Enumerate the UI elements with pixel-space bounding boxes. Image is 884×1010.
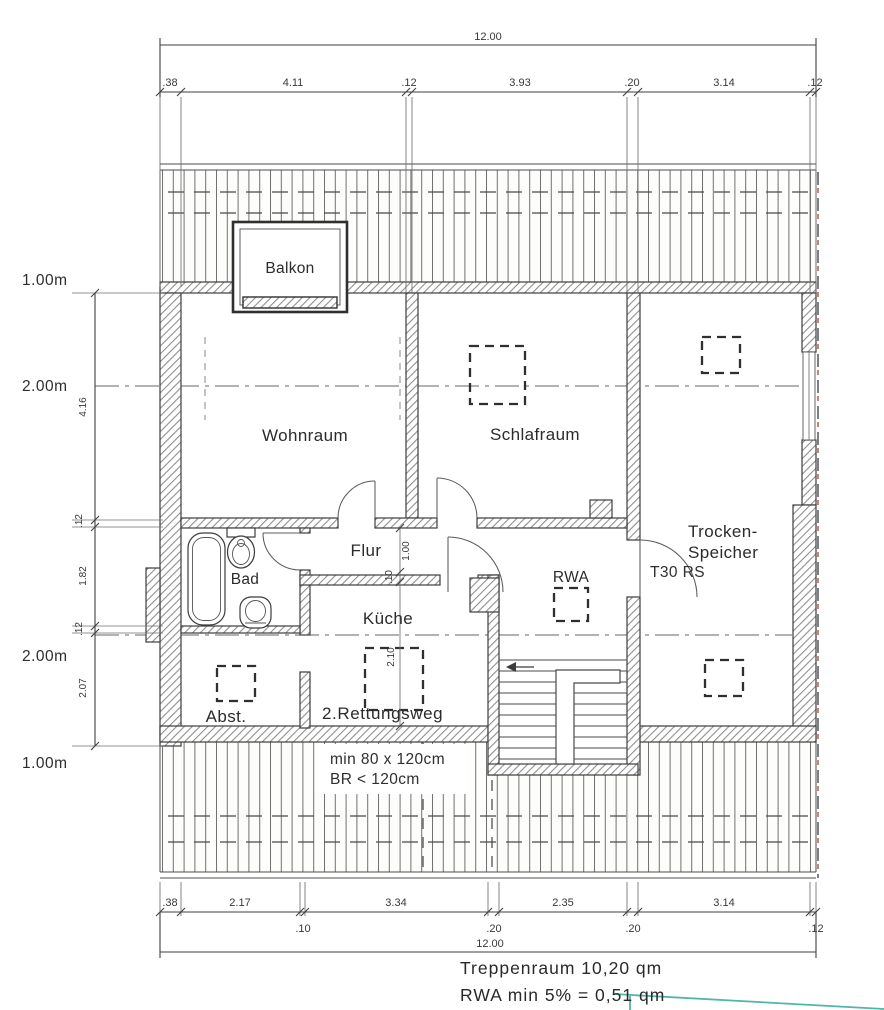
room-label-abst: Abst. [206, 707, 247, 726]
dim-left-seg-0: 4.16 [78, 397, 89, 417]
room-labels: Balkon Wohnraum Schlafraum Trocken- Spei… [206, 260, 759, 726]
height-label-top-1m: 1.00m [22, 272, 68, 289]
dim-top-overall: 12.00 [474, 31, 502, 43]
dim-top-seg-6: .12 [807, 77, 822, 89]
room-label-flur: Flur [351, 541, 382, 560]
dim-inner-1: .10 [384, 570, 395, 584]
roof-window-trocken-bottom [705, 660, 743, 696]
dim-top-seg-5: 3.14 [713, 77, 734, 89]
annotation-min-size: min 80 x 120cm [330, 751, 445, 768]
balcony-sill [243, 297, 337, 308]
dim-bot-r1-4: 3.14 [713, 897, 734, 909]
dim-bot-r2-2: .20 [625, 923, 640, 935]
room-label-schlafraum: Schlafraum [490, 425, 580, 444]
chimney-left [146, 568, 160, 642]
dim-top-seg-4: .20 [624, 77, 639, 89]
height-label-bottom-1m: 1.00m [22, 755, 68, 772]
dim-top-seg-0: .38 [162, 77, 177, 89]
dim-top-seg-1: 4.11 [283, 77, 304, 89]
wall-wohnraum-schlafraum [406, 293, 418, 518]
dim-bot-r2-1: .20 [486, 923, 501, 935]
dim-top-seg-2: .12 [401, 77, 416, 89]
left-dimensions: 4.16 .12 1.82 .12 2.07 1.00m 2.00m 2.00m… [22, 272, 163, 772]
dim-bot-r2-0: .10 [295, 923, 310, 935]
footer-notes: Treppenraum 10,20 qm RWA min 5% = 0,51 q… [460, 958, 665, 1005]
floor-plan-drawing: 12.00 .38 4.11 .12 3.93 .20 3.14 .12 [0, 0, 884, 1010]
room-label-kueche: Küche [363, 609, 413, 628]
dim-left-seg-1: .12 [74, 514, 85, 528]
dim-inner-2: 2.10 [386, 647, 397, 667]
dim-bot-overall: 12.00 [476, 938, 504, 950]
footer-rwa: RWA min 5% = 0,51 qm [460, 985, 665, 1005]
room-label-trocken-line1: Trocken- [688, 522, 758, 541]
dim-bot-r1-1: 2.17 [229, 897, 250, 909]
roof-window-schlafraum [470, 346, 525, 404]
door-arc-wohnraum [338, 481, 375, 518]
annotation-rettungsweg: 2.Rettungsweg [322, 704, 443, 723]
dim-bot-r1-2: 3.34 [385, 897, 406, 909]
height-label-top-2m: 2.00m [22, 378, 68, 395]
room-label-balkon: Balkon [265, 260, 314, 277]
dim-left-seg-3: .12 [74, 622, 85, 636]
rwa-opening [554, 588, 588, 621]
dim-left-seg-4: 2.07 [78, 678, 89, 698]
room-label-rwa: RWA [553, 569, 590, 586]
dim-bot-r1-3: 2.35 [552, 897, 573, 909]
dim-top-seg-3: 3.93 [509, 77, 530, 89]
dim-left-seg-2: 1.82 [78, 566, 89, 586]
annotation-br: BR < 120cm [330, 771, 420, 788]
dim-inner-0: 1.00 [401, 541, 412, 561]
toilet [227, 528, 255, 568]
annotation-t30: T30 RS [650, 564, 705, 581]
sink [240, 597, 271, 628]
height-label-bottom-2m: 2.00m [22, 648, 68, 665]
door-arc-bad [263, 533, 300, 570]
room-label-bad: Bad [231, 571, 259, 588]
room-label-wohnraum: Wohnraum [262, 426, 348, 445]
door-arc-schlafraum [437, 478, 477, 518]
wall-schlafraum-trocken [627, 293, 640, 540]
footer-treppenraum: Treppenraum 10,20 qm [460, 958, 662, 978]
floor-plan-page: 12.00 .38 4.11 .12 3.93 .20 3.14 .12 [0, 0, 884, 1010]
dim-bot-r1-0: .38 [162, 897, 177, 909]
room-label-trocken-line2: Speicher [688, 543, 758, 562]
roof-window-trocken-top [702, 337, 740, 373]
bathtub [188, 533, 225, 625]
roof-window-abst [217, 666, 255, 701]
bottom-dimensions: .38 2.17 3.34 2.35 3.14 .10 .20 .20 .12 … [156, 882, 824, 958]
